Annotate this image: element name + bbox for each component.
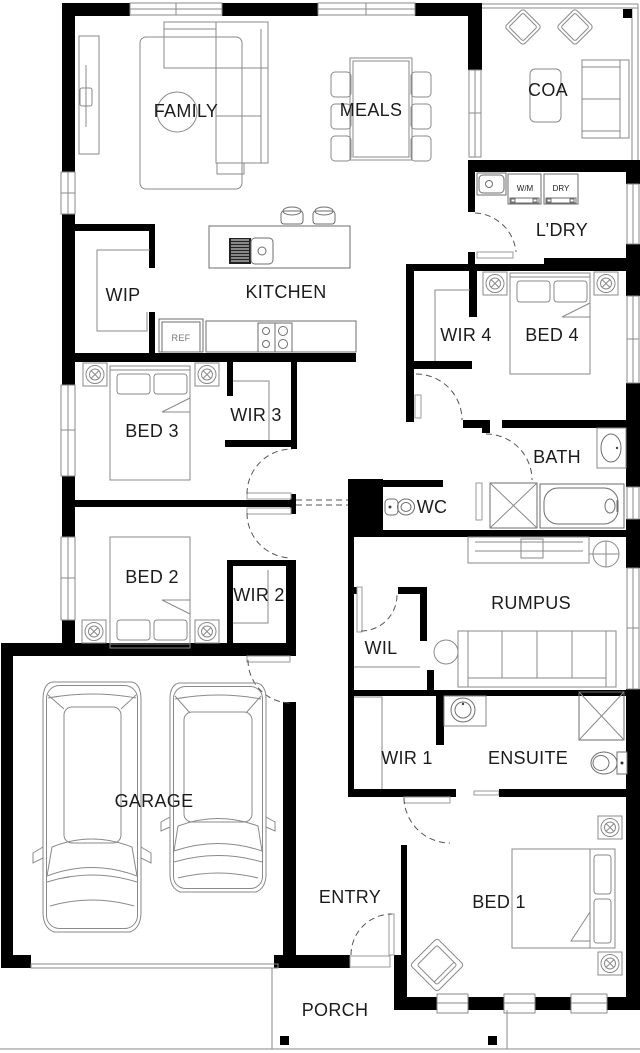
- svg-text:GARAGE: GARAGE: [115, 791, 194, 811]
- svg-text:BED 2: BED 2: [125, 567, 179, 587]
- svg-text:WIL: WIL: [365, 638, 398, 658]
- svg-text:ENTRY: ENTRY: [319, 887, 381, 907]
- svg-text:DRY: DRY: [553, 184, 570, 193]
- svg-text:WIR 1: WIR 1: [381, 748, 433, 768]
- svg-text:PORCH: PORCH: [302, 1000, 369, 1020]
- svg-text:W/M: W/M: [517, 184, 534, 193]
- svg-text:BATH: BATH: [533, 447, 581, 467]
- svg-text:WIP: WIP: [106, 285, 141, 305]
- svg-text:BED 3: BED 3: [125, 421, 179, 441]
- svg-text:WIR 4: WIR 4: [440, 325, 492, 345]
- svg-text:MEALS: MEALS: [340, 100, 403, 120]
- svg-text:BED 4: BED 4: [525, 325, 579, 345]
- svg-text:COA: COA: [528, 80, 568, 100]
- svg-text:WIR 3: WIR 3: [230, 405, 282, 425]
- svg-text:WIR 2: WIR 2: [233, 585, 285, 605]
- svg-text:FAMILY: FAMILY: [154, 101, 218, 121]
- svg-text:BED 1: BED 1: [472, 892, 526, 912]
- svg-text:KITCHEN: KITCHEN: [245, 282, 326, 302]
- svg-text:RUMPUS: RUMPUS: [491, 593, 571, 613]
- svg-text:REF: REF: [172, 333, 191, 343]
- svg-text:ENSUITE: ENSUITE: [488, 748, 568, 768]
- svg-text:WC: WC: [417, 497, 448, 517]
- svg-text:L’DRY: L’DRY: [536, 220, 588, 240]
